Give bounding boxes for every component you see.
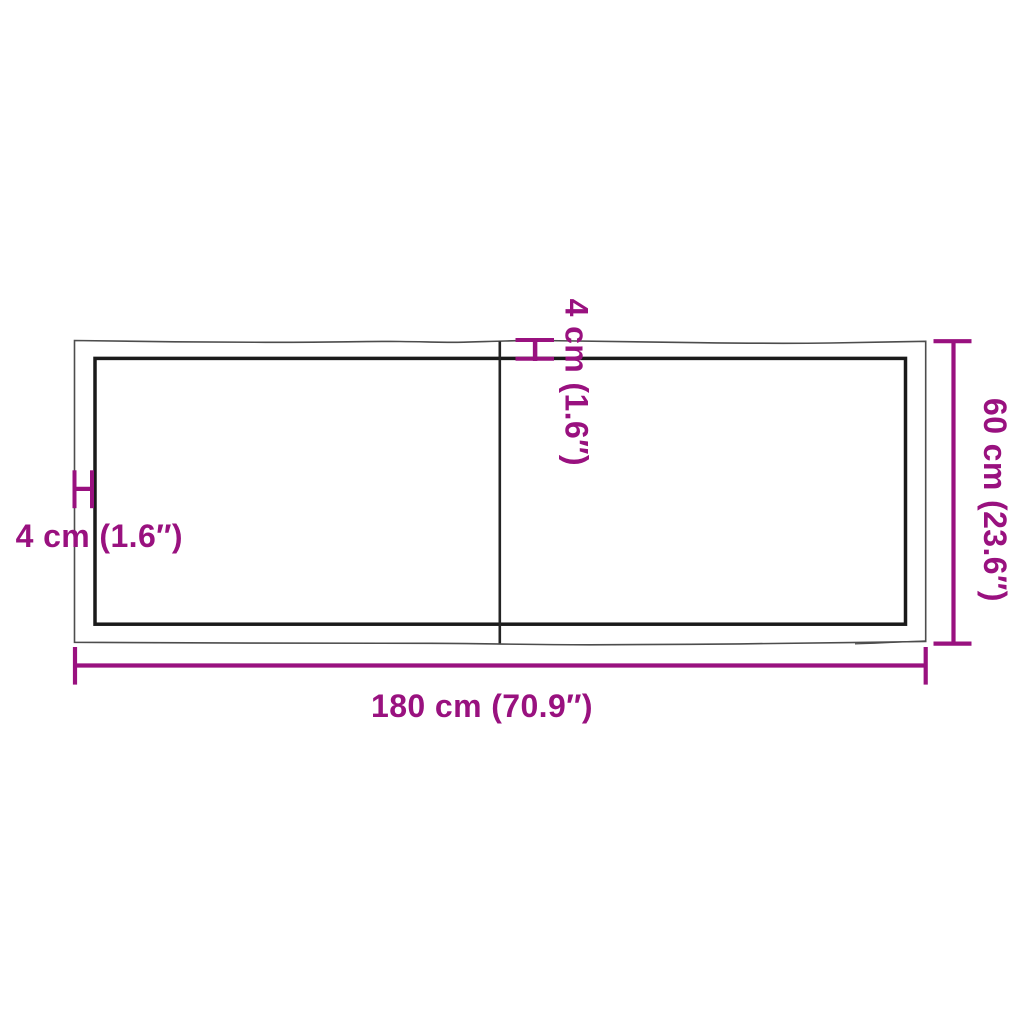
svg-text:4 cm (1.6″): 4 cm (1.6″): [558, 299, 594, 466]
svg-text:60 cm (23.6″): 60 cm (23.6″): [977, 398, 1013, 602]
svg-text:4 cm (1.6″): 4 cm (1.6″): [16, 518, 183, 554]
svg-text:180 cm (70.9″): 180 cm (70.9″): [371, 688, 593, 724]
